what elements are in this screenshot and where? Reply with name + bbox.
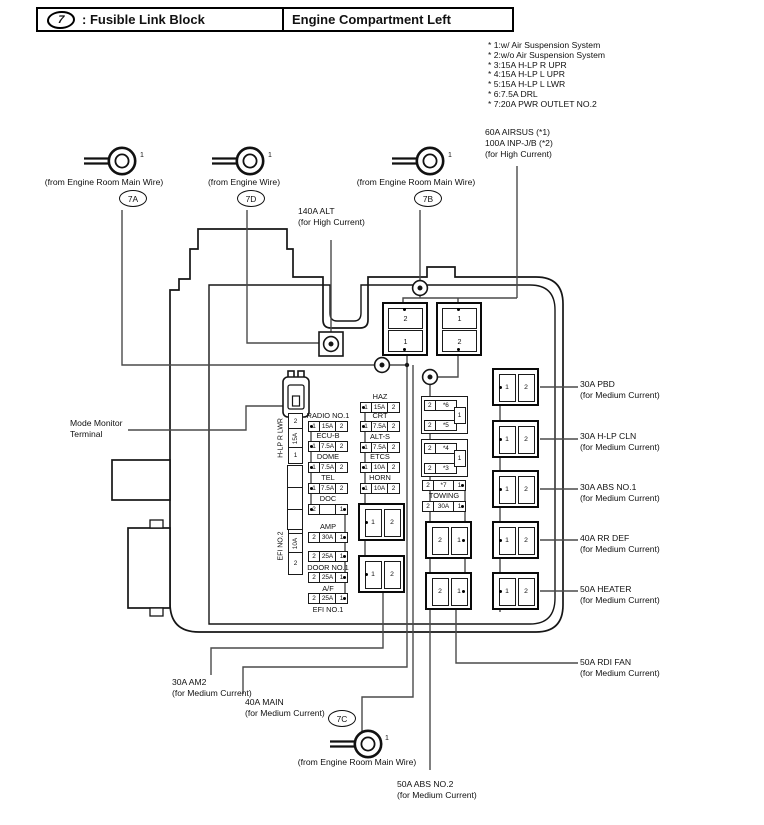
terminal-pin-number: 1 [385,735,389,742]
fuse-cell: 2 [384,561,401,589]
terminal-dot [343,555,346,558]
fuse-row: 17.5A2 [308,462,348,473]
bottom-fuse-label: 40A MAIN(for Medium Current) [245,697,325,719]
fuse-cell: 7.5A [320,463,336,472]
terminal-wire-label: (from Engine Room Main Wire) [357,177,475,188]
note-line: * 7:20A PWR OUTLET NO.2 [488,100,597,110]
terminal-id-badge: 7A [119,190,147,207]
fuse-cell: 1 [309,484,320,493]
fuse-cell: 2 [423,502,434,511]
terminal-dot [461,505,464,508]
fuse-row: 2*4 [424,443,457,454]
fuse-cell: 2 [425,421,436,430]
terminal-dot [343,536,346,539]
fuse-cell: 30A [320,533,336,542]
terminal-dot [310,487,313,490]
terminal-dot [461,484,464,487]
title-left-cell: 7 : Fusible Link Block [38,9,284,30]
terminal-dot [310,466,313,469]
fuse-row-label: RADIO NO.1 [307,412,350,420]
fuse-cell: 2 [384,509,401,537]
terminal-pin-number: 1 [448,152,452,159]
fuse-cell: 25A [320,594,336,603]
right-fuse-label: 50A HEATER(for Medium Current) [580,584,660,606]
fuse-row-label: DOME [317,453,339,461]
wire-junction [405,363,409,367]
fuse-row-label: TEL [321,474,335,482]
fuse-cell: 2 [388,484,399,493]
fuse-cell: 2 [425,401,436,410]
fuse-row-label: DOOR NO.1 [307,564,348,572]
terminal-dot [462,590,465,593]
fuse-cell: 1 [309,463,320,472]
vertical-fuse: 215A1 [288,413,303,464]
fuse-row-label: ECU-B [317,432,340,440]
left-upper-tab [112,460,170,500]
right-fuse-label: 40A RR DEF(for Medium Current) [580,533,660,555]
right-fuse-label: 30A H-LP CLN(for Medium Current) [580,431,660,453]
terminal-dot [362,466,365,469]
bracket-output-cell: 1 [454,407,466,424]
fuse-cell: 1 [361,484,372,493]
fuse-cell: 2 [432,578,449,606]
fuse-cell: 2 [423,481,434,490]
fuse-cell: 2 [388,463,399,472]
fuse-row: 225A1 [308,572,348,583]
fuse-cell: 2 [518,527,535,555]
bracket-output-cell: 1 [454,450,466,467]
fuse-cell: 1 [309,442,320,451]
fuse-cell: 2 [518,578,535,606]
fuse-cell: 2 [309,573,320,582]
fuse-cell: 1 [289,448,302,463]
vertical-fuse-label: EFI NO.2 [278,531,285,560]
fuse-bracket: 2*42*31 [421,439,468,477]
fuse-cell: 2 [336,463,347,472]
terminal-wire-label: (from Engine Room Main Wire) [45,177,163,188]
fuse-row: 17.5A2 [308,483,348,494]
fuse-cell: 1 [336,505,347,514]
terminal-dot [343,597,346,600]
fuse-cell: 1 [454,481,465,490]
medium-current-fuse-box: 12 [492,368,539,406]
fuse-row: 110A2 [360,462,400,473]
fuse-cell: 2 [388,422,399,431]
fuse-cell: 25A [320,573,336,582]
medium-current-fuse-box: 21 [425,572,472,610]
fuse-cell: 1 [336,552,347,561]
bottom-fuse-label: 50A ABS NO.2(for Medium Current) [397,779,477,801]
fuse-row: 2*5 [424,420,457,431]
fuse-row-label: HAZ [373,393,388,401]
terminal-dot [462,539,465,542]
fuse-cell: 10A [372,484,388,493]
terminal-pin-number: 1 [268,152,272,159]
fuse-row: 225A1 [308,593,348,604]
fuse-cell: 2 [309,594,320,603]
fuse-row-label: DOC [320,495,336,503]
fuse-cell: 1 [361,422,372,431]
terminal-pin-number: 1 [140,152,144,159]
fuse-row-label: HORN [369,474,391,482]
fuse-row: 2*71 [422,480,466,491]
terminal-dot [362,487,365,490]
terminal-dot [310,508,313,511]
fuse-cell: 1 [336,533,347,542]
fuse-row: 17.5A2 [360,421,400,432]
high-current-fuse-box: 12 [436,302,482,356]
fuse-row-label: A/F [322,585,334,593]
ring-terminal-7B [392,148,443,174]
fuse-bracket: 2*62*51 [421,396,468,434]
fuse-cell: 2 [388,308,423,329]
terminal-dot [310,425,313,428]
fuse-cell: 7.5A [372,422,388,431]
medium-current-fuse-box: 12 [492,470,539,508]
terminal-id-badge: 7B [414,190,442,207]
fuse-row: 17.5A2 [308,441,348,452]
fuse-cell: 30A [434,502,454,511]
fuse-cell: 2 [289,414,302,429]
fuse-cell: 2 [289,553,302,574]
fuse-cell: 1 [336,573,347,582]
terminal-wire-label: (from Engine Wire) [208,177,280,188]
ring-terminal-7C [330,731,381,757]
fuse-cell: 2 [309,552,320,561]
title-right-text: Engine Compartment Left [292,12,451,27]
fusible-link-icon: 7 [46,11,76,29]
title-bar: 7 : Fusible Link Block Engine Compartmen… [36,7,514,32]
fuse-cell: 1 [361,403,372,412]
right-fuse-label: 30A ABS NO.1(for Medium Current) [580,482,660,504]
fuse-cell: 2 [336,442,347,451]
fuse-row: 225A1 [308,551,348,562]
mode-monitor-connector-icon [283,371,309,417]
terminal-dot [362,406,365,409]
ring-terminal-7D [212,148,263,174]
fuse-cell: 25A [320,552,336,561]
fuse-row-label: CRT [372,412,387,420]
fuse-cell: 1 [442,308,477,329]
right-fuse-label: 50A RDI FAN(for Medium Current) [580,657,660,679]
fusible-link-block-diagram: 7 : Fusible Link Block Engine Compartmen… [0,0,764,825]
medium-current-fuse-box: 12 [492,521,539,559]
title-left-text: : Fusible Link Block [82,12,205,27]
terminal-dot [362,446,365,449]
fuse-row: 230A1 [422,501,466,512]
fuse-cell: 2 [309,533,320,542]
high-current-fuse-box: 21 [382,302,428,356]
fuse-row: 2*3 [424,463,457,474]
fuse-cell: 2 [518,426,535,454]
fuse-row: 110A2 [360,483,400,494]
fuse-cell: 2 [518,374,535,402]
fuse-row-label: ETCS [370,453,390,461]
fuse-cell: 2 [388,403,399,412]
terminal-wire-label: (from Engine Room Main Wire) [298,757,416,768]
bottom-fuse-label: 30A AM2(for Medium Current) [172,677,252,699]
medium-current-fuse-box: 21 [425,521,472,559]
terminal-dot [362,425,365,428]
fuse-cell: 10A [372,463,388,472]
fuse-cell: *7 [434,481,454,490]
right-fuse-label: 30A PBD(for Medium Current) [580,379,660,401]
fuse-cell: 2 [518,476,535,504]
ring-terminal-7A [84,148,135,174]
fuse-cell: 1 [361,463,372,472]
medium-current-fuse-box: 12 [358,503,405,541]
fuse-cell [320,505,336,514]
terminal-id-badge: 7D [237,190,265,207]
fuse-row: 230A1 [308,532,348,543]
fuse-cell: 2 [309,505,320,514]
terminal-dot [343,508,346,511]
fuse-row: 21 [308,504,348,515]
terminal-dot [310,445,313,448]
fuse-cell: 7.5A [320,442,336,451]
vertical-fuse-label: H-LP R LWR [278,418,285,458]
fuse-cell: 7.5A [320,484,336,493]
empty-fuse-holder [287,465,303,530]
fuse-cell: 2 [336,484,347,493]
fuse-cell: 10A [289,534,302,553]
medium-current-fuse-box: 12 [492,420,539,458]
fuse-cell: 1 [454,502,465,511]
callout-mode-monitor: Mode MonitorTerminal [70,418,123,440]
fuse-cell: 1 [336,594,347,603]
title-right-cell: Engine Compartment Left [284,9,451,30]
medium-current-fuse-box: 12 [358,555,405,593]
medium-current-fuse-box: 12 [492,572,539,610]
fuse-cell: 2 [425,444,436,453]
fuse-cell: 15A [289,429,302,448]
terminal-dot [343,576,346,579]
fuse-cell: 2 [425,464,436,473]
callout-airsus: 60A AIRSUS (*1) 100A INP-J/B (*2) (for H… [485,127,553,160]
left-lower-tab [128,528,170,608]
callout-140a-alt: 140A ALT(for High Current) [298,206,365,228]
terminal-id-badge: 7C [328,710,356,727]
fuse-cell: 2 [432,527,449,555]
fuse-row-label: EFI NO.1 [313,606,344,614]
fuse-row-label: TOWING [429,492,459,500]
fuse-row: 2*6 [424,400,457,411]
fuse-row-label: AMP [320,523,336,531]
fuse-row-label: ALT-S [370,433,390,441]
